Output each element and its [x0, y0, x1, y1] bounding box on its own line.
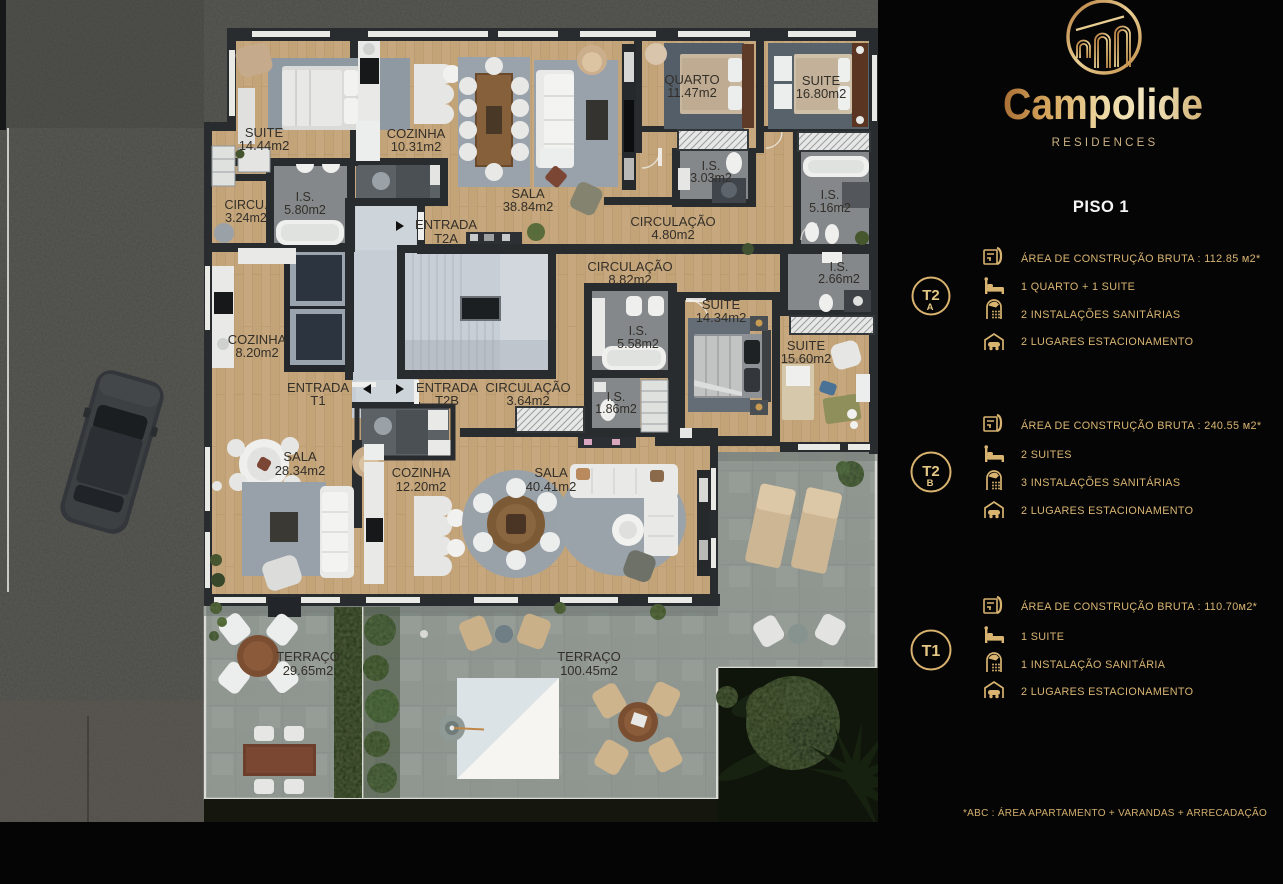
svg-text:2 LUGARES ESTACIONAMENTO: 2 LUGARES ESTACIONAMENTO	[1021, 505, 1193, 517]
svg-text:14.34m2: 14.34m2	[696, 310, 747, 325]
svg-text:A: A	[927, 302, 934, 313]
svg-text:11.47m2: 11.47m2	[667, 85, 717, 100]
svg-text:16.80m2: 16.80m2	[796, 86, 847, 101]
svg-text:PISO 1: PISO 1	[1073, 198, 1129, 216]
svg-text:1 INSTALAÇÃO SANITÁRIA: 1 INSTALAÇÃO SANITÁRIA	[1021, 658, 1166, 671]
svg-text:40.41m2: 40.41m2	[526, 479, 577, 494]
svg-text:8.82m2: 8.82m2	[608, 272, 651, 287]
svg-text:1 QUARTO + 1 SUITE: 1 QUARTO + 1 SUITE	[1021, 281, 1135, 293]
svg-text:15.60m2: 15.60m2	[781, 351, 832, 366]
svg-text:CIRCU.: CIRCU.	[224, 198, 267, 212]
svg-text:T2A: T2A	[434, 231, 458, 246]
svg-text:B: B	[927, 478, 934, 489]
svg-text:14.44m2: 14.44m2	[239, 138, 290, 153]
svg-text:29.65m2: 29.65m2	[283, 663, 334, 678]
svg-text:3.24m2: 3.24m2	[225, 211, 267, 225]
svg-text:38.84m2: 38.84m2	[503, 199, 554, 214]
svg-text:I.S.: I.S.	[821, 188, 840, 202]
svg-text:12.20m2: 12.20m2	[396, 479, 447, 494]
svg-text:2 SUITES: 2 SUITES	[1021, 449, 1072, 461]
svg-text:1 SUITE: 1 SUITE	[1021, 631, 1064, 643]
svg-text:TERRAÇO: TERRAÇO	[557, 649, 621, 664]
svg-text:5.58m2: 5.58m2	[617, 337, 659, 351]
svg-text:2 INSTALAÇÕES SANITÁRIAS: 2 INSTALAÇÕES SANITÁRIAS	[1021, 308, 1180, 321]
svg-text:I.S.: I.S.	[629, 324, 648, 338]
svg-text:SALA: SALA	[534, 465, 568, 480]
svg-text:1.86m2: 1.86m2	[595, 402, 637, 416]
svg-text:T1: T1	[922, 643, 941, 660]
svg-text:10.31m2: 10.31m2	[391, 139, 442, 154]
svg-text:5.16m2: 5.16m2	[809, 201, 851, 215]
svg-text:2.66m2: 2.66m2	[818, 272, 860, 286]
svg-text:4.80m2: 4.80m2	[651, 227, 694, 242]
svg-text:3.64m2: 3.64m2	[506, 393, 549, 408]
svg-text:2 LUGARES ESTACIONAMENTO: 2 LUGARES ESTACIONAMENTO	[1021, 686, 1193, 698]
svg-text:T2B: T2B	[435, 393, 459, 408]
svg-text:I.S.: I.S.	[296, 190, 315, 204]
svg-text:8.20m2: 8.20m2	[235, 345, 278, 360]
svg-text:2 LUGARES ESTACIONAMENTO: 2 LUGARES ESTACIONAMENTO	[1021, 336, 1193, 348]
svg-text:COZINHA: COZINHA	[392, 465, 451, 480]
svg-text:*ABC : ÁREA APARTAMENTO + VAR: *ABC : ÁREA APARTAMENTO + VARANDAS + ARR…	[963, 806, 1267, 819]
svg-text:ENTRADA: ENTRADA	[415, 217, 477, 232]
svg-text:ÁREA DE CONSTRUÇÃO BRUTA : 24: ÁREA DE CONSTRUÇÃO BRUTA : 240.55 м2*	[1021, 419, 1262, 432]
svg-text:RESIDENCES: RESIDENCES	[1052, 137, 1159, 149]
svg-text:28.34m2: 28.34m2	[275, 463, 326, 478]
svg-text:T1: T1	[310, 393, 325, 408]
svg-text:3.03m2: 3.03m2	[690, 171, 732, 185]
svg-text:5.80m2: 5.80m2	[284, 203, 326, 217]
svg-text:3 INSTALAÇÕES SANITÁRIAS: 3 INSTALAÇÕES SANITÁRIAS	[1021, 476, 1180, 489]
svg-text:ÁREA DE CONSTRUÇÃO BRUTA : 11: ÁREA DE CONSTRUÇÃO BRUTA : 112.85 м2*	[1021, 252, 1261, 265]
svg-text:Campolide: Campolide	[1003, 80, 1203, 129]
svg-text:100.45m2: 100.45m2	[560, 663, 618, 678]
svg-text:TERRAÇO: TERRAÇO	[276, 649, 340, 664]
svg-text:SALA: SALA	[283, 449, 317, 464]
svg-text:ÁREA DE CONSTRUÇÃO BRUTA : 11: ÁREA DE CONSTRUÇÃO BRUTA : 110.70м2*	[1021, 600, 1258, 613]
